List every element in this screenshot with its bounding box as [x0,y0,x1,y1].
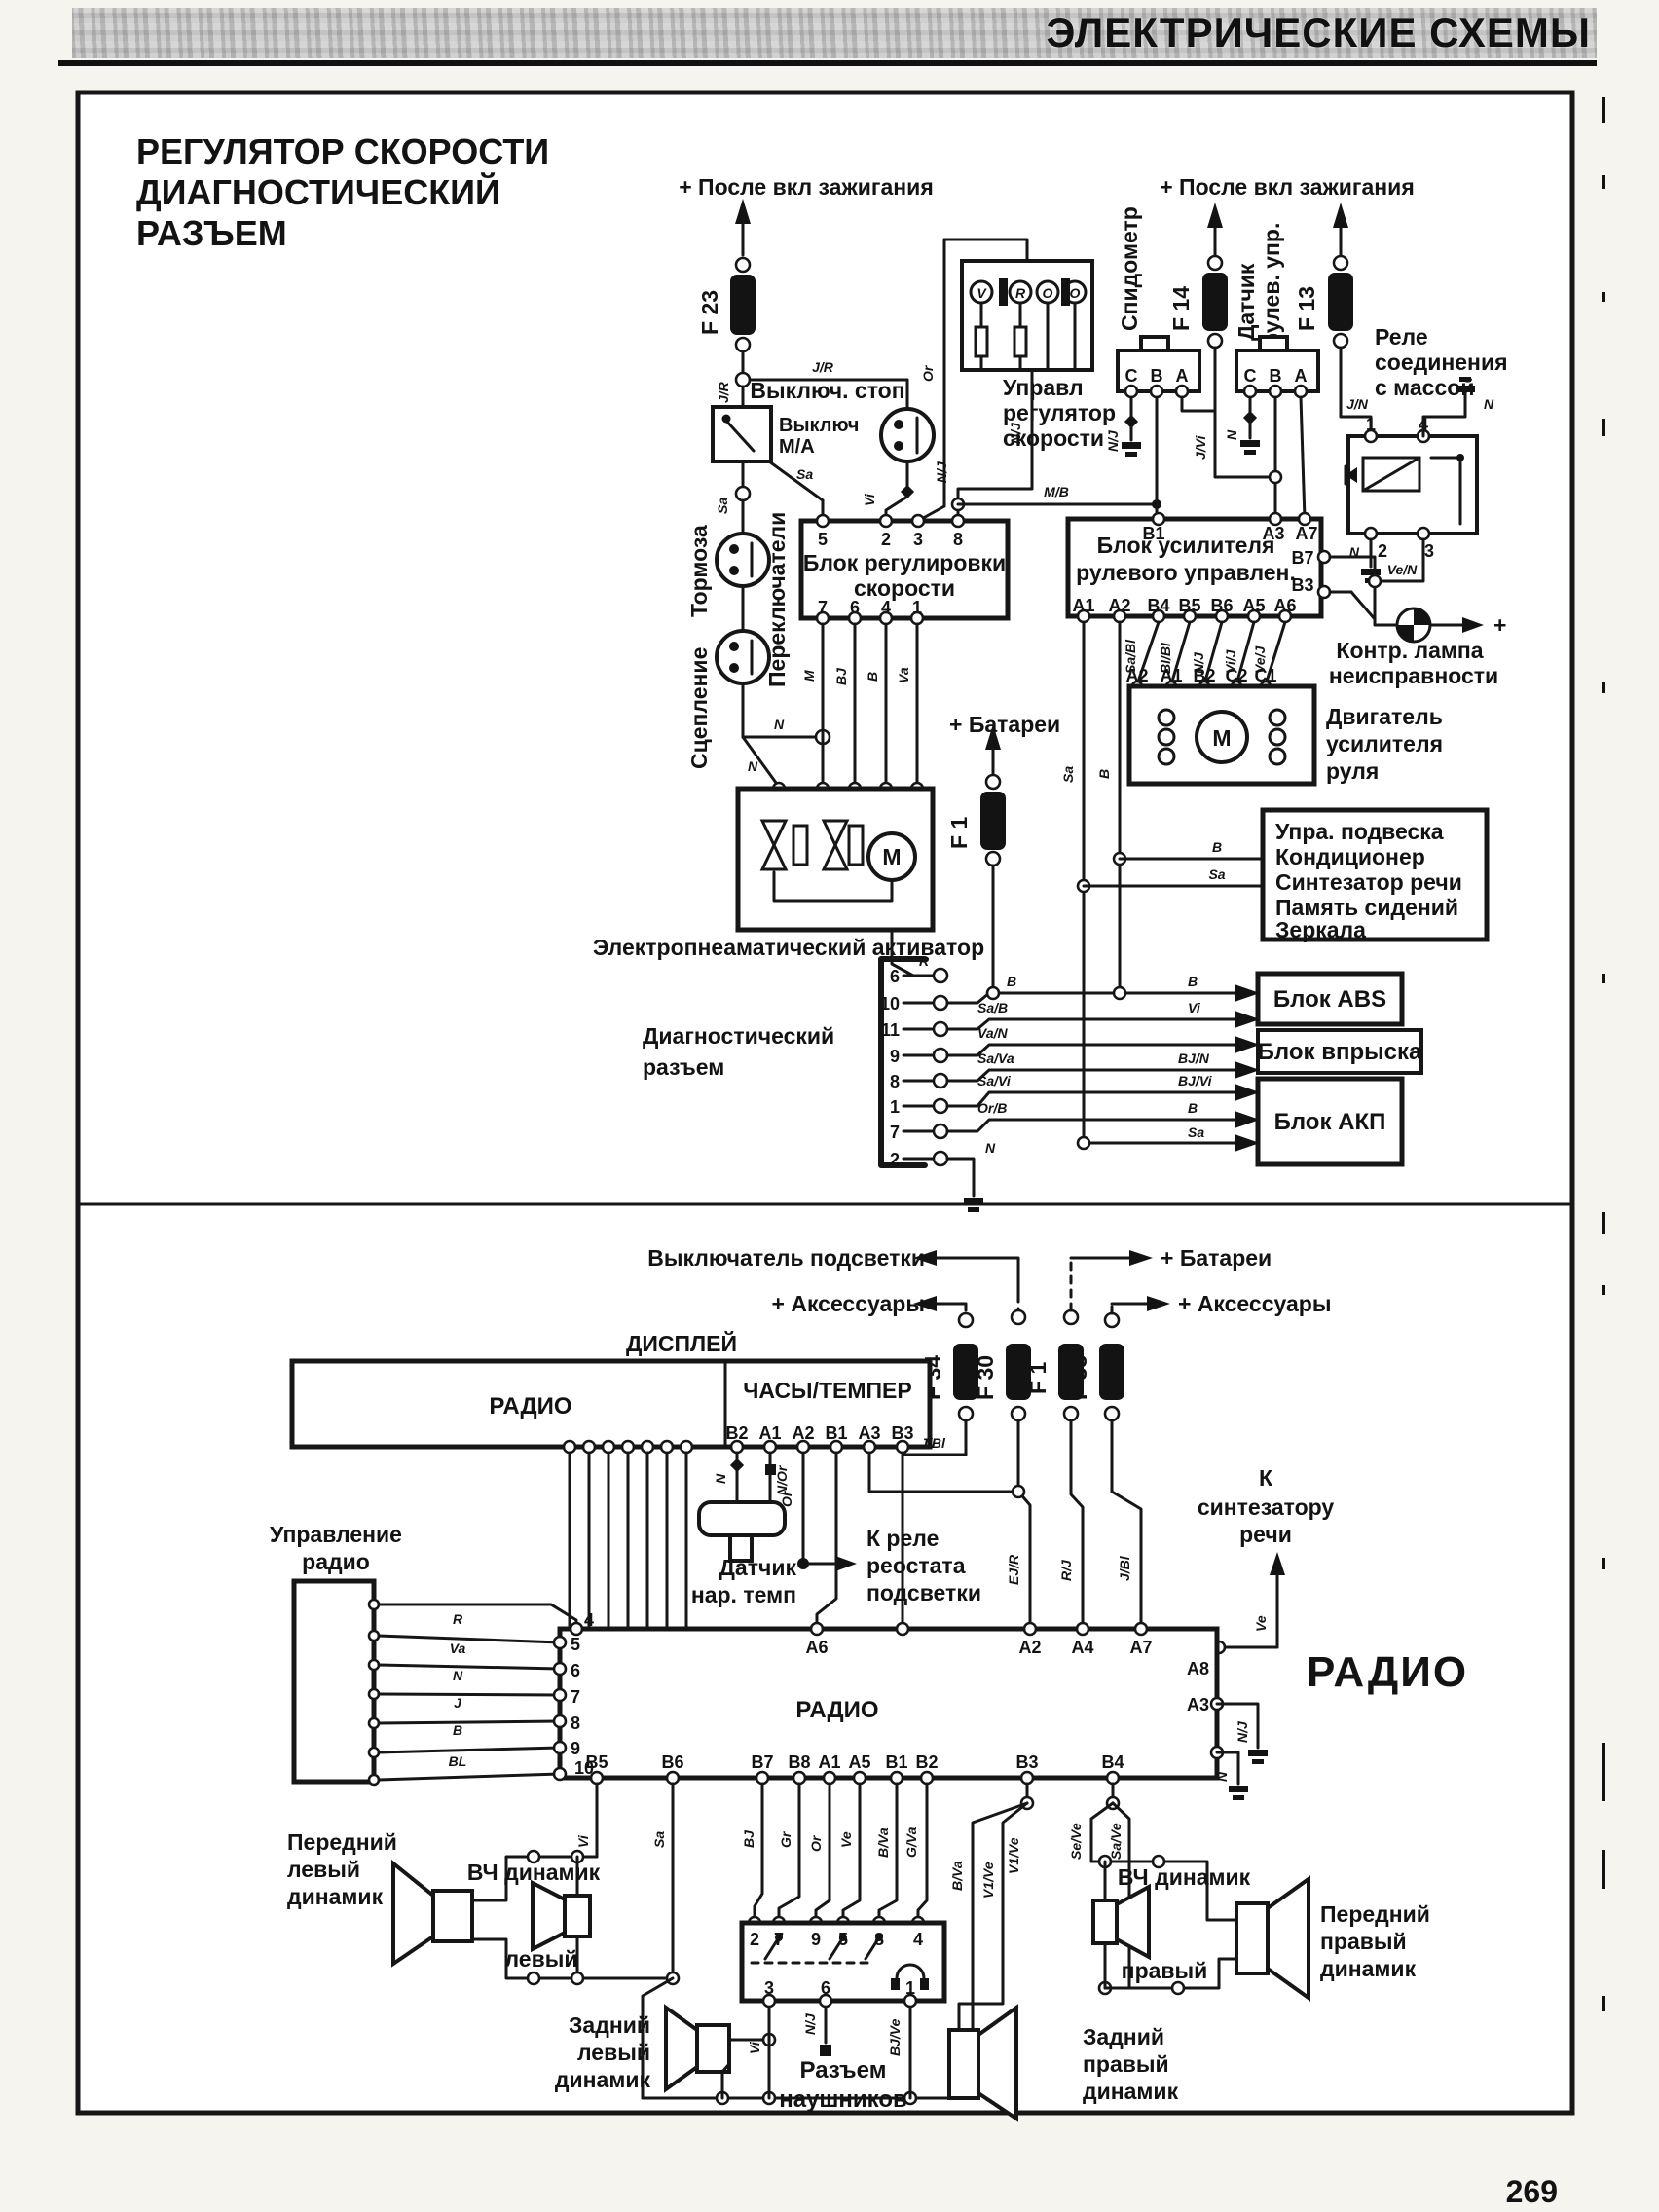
fuse-f14-label: F 14 [1168,286,1194,331]
speed-pin-8: 8 [953,530,963,549]
speed-pin-2: 2 [881,530,891,549]
row-rlabel-b: B [1188,974,1198,989]
wire-seve: Se/Ve [1068,1823,1084,1860]
radio-pin-a7: А7 [1129,1638,1152,1657]
ecu-akp: Блок АКП [1274,1109,1386,1135]
stalk-label1: Управл [1003,375,1084,400]
wire-n2: N [748,758,758,774]
wire-ngnd: N [985,1140,996,1156]
page-number: 269 [1506,2174,1558,2209]
clock-pin-a1: А1 [758,1423,781,1443]
row-label-van: Va/N [977,1025,1008,1041]
wire-jbl: J/Bl [920,1435,946,1451]
rr-label1: Задний [1083,2024,1164,2049]
wire-saamp: Sa [1060,766,1076,783]
radio-pin-b5: В5 [585,1752,608,1772]
diag-label1: Диагностический [643,1023,834,1049]
row-label-sab: Sa/B [977,1000,1008,1015]
radio-pin-b4: В4 [1101,1752,1124,1772]
ctl-wire-b: B [453,1722,462,1738]
amp-pin-b1: В1 [1142,524,1164,543]
wire-vi-jack: Vi [747,2041,762,2054]
speed-pin-5: 5 [818,530,828,549]
wire-nj-jack: N/J [802,2012,818,2035]
jack-label2: наушников [779,2086,907,2113]
fl-label1: Передний [287,1829,397,1855]
clutch-label: Сцепление [686,647,712,769]
diag-pin-11: 11 [881,1020,900,1040]
row-rlabel-bjn: BJ/N [1178,1051,1210,1066]
ctl-wire-va: Va [450,1641,466,1656]
motor-label3: руля [1326,758,1379,784]
wire-b: B [865,672,880,682]
radio-pin-6: 6 [571,1661,580,1680]
relay-title1: Реле [1375,324,1428,350]
radio-pin-a3: А3 [1187,1695,1209,1714]
radio-pin-b1: В1 [885,1752,907,1772]
amp-pin-a7: А7 [1295,524,1317,543]
amp-pin-a1: А1 [1072,596,1094,615]
stalk-letter-o2: O [1070,285,1081,301]
stalk-letter-o1: O [1043,285,1053,301]
wire-ven: Ve/N [1387,562,1418,577]
ecu-abs: Блок ABS [1273,986,1386,1013]
wire-r: R [919,953,930,969]
amp-pin-a6: А6 [1273,596,1296,615]
relay-pin-3: 3 [1424,541,1434,561]
wire-n1: N [774,717,785,732]
wire-jr-left: J/R [716,381,731,403]
diagram-title-line3: РАЗЪЕМ [136,213,287,253]
display-clock-section: ЧАСЫ/ТЕМПЕР [743,1378,911,1403]
wire-nj-gnd: N/J [1235,1720,1250,1743]
wire-njc: N/J [1105,429,1121,452]
ma-switch-icon [713,407,771,461]
row-rlabel-bjvi: BJ/Vi [1178,1073,1213,1088]
clock-pin-a3: А3 [858,1423,880,1443]
motor-m: М [1212,725,1231,751]
stalk-letter-r: R [1015,285,1026,301]
fr-label1: Передний [1320,1901,1430,1927]
wire-or-a1: Or [808,1834,824,1852]
amp-pin-b5: В5 [1178,596,1200,615]
wire-bamp: B [1096,769,1112,779]
fr-label3: динамик [1320,1956,1417,1981]
jack-pin-9: 9 [811,1930,821,1949]
steer-sensor-label2: рулев. упр. [1259,223,1284,347]
ignition-label-left: + После вкл зажигания [679,174,934,200]
diag-pin-2: 2 [890,1150,900,1169]
battery-label-top: + Батареи [949,712,1060,737]
radio-pin-4: 4 [584,1610,594,1630]
wire-mb: М/В [1044,484,1069,499]
radio-pin-b3: В3 [1015,1752,1038,1772]
steer-pin-a: А [1295,366,1308,386]
steer-pin-b: В [1270,366,1282,386]
fr-label2: правый [1320,1929,1407,1954]
synth-label2: синтезатору [1198,1494,1335,1520]
ctl-wire-n: N [453,1668,463,1683]
illum-switch-label: Выключатель подсветки [647,1245,925,1271]
clock-pin-b3: В3 [891,1423,913,1443]
relay-pin-2: 2 [1378,541,1387,561]
jack-pin-5: 5 [838,1930,848,1949]
diag-pin-9: 9 [890,1047,900,1066]
speedo-pin-b: В [1151,366,1163,386]
speedometer-label: Спидометр [1117,206,1142,331]
wire-nj1: N/J [1008,422,1023,444]
temp-sensor-label1: Датчик [719,1555,797,1580]
wire-bj-b7: BJ [741,1829,756,1848]
ignition-label-right: + После вкл зажигания [1160,174,1415,200]
display-label: ДИСПЛЕЙ [626,1330,737,1356]
jack-pin-7: 7 [774,1930,784,1949]
amp-pin-a2: А2 [1108,596,1130,615]
jack-pin-6: 6 [821,1978,830,1998]
wire-v1ve-1: V1/Ve [980,1862,996,1899]
diagram-title-line2: ДИАГНОСТИЧЕСКИЙ [136,171,500,212]
radio-ctl-label1: Управление [270,1522,402,1547]
amp-pin-a3: А3 [1262,524,1284,543]
steer-sensor-label1: Датчик [1234,263,1259,341]
fuse-f23-label: F 23 [697,290,722,335]
twl-label1: ВЧ динамик [467,1860,601,1885]
ecu-injection: Блок впрыска [1258,1039,1422,1065]
wire-jbl2: J/Bl [1117,1555,1132,1581]
ma-switch-label2: М/А [779,436,815,458]
amp-pin-a5: А5 [1242,596,1265,615]
amp-pin-b3: В3 [1291,575,1313,595]
wire-jn: J/N [1346,396,1369,412]
ctl-wire-bl: BL [449,1753,467,1769]
radio-pin-8: 8 [571,1714,580,1733]
radio-pin-a6: А6 [805,1638,828,1657]
rheostat-label1: К реле [866,1526,939,1551]
radio-pin-a4: А4 [1071,1638,1093,1657]
wire-nc: N [1224,429,1239,440]
clock-pin-a2: А2 [792,1423,814,1443]
radio-pin-a5: А5 [848,1752,870,1772]
diag-pin-8: 8 [890,1072,900,1091]
twr-label1: ВЧ динамик [1118,1864,1251,1890]
activator-icon [738,783,933,930]
wire-ve-a5: Ve [838,1831,854,1848]
battery-label-bottom: + Батареи [1161,1245,1272,1271]
rr-label2: правый [1083,2051,1169,2077]
motor-label1: Двигатель [1326,704,1443,729]
rheostat-label3: подсветки [866,1580,981,1605]
jack-pin-8: 8 [874,1930,884,1949]
speedo-pin-a: А [1176,366,1189,386]
wire-n4: N [1484,396,1494,412]
amp-pin-b4: В4 [1147,596,1169,615]
amp-pin-b6: В6 [1210,596,1233,615]
wire-or: Or [920,364,936,382]
wire-sabox: Sa [1208,866,1225,882]
wire-vi-b5: Vi [575,1834,591,1848]
fuse-f30-label: F 30 [973,1355,998,1400]
wire-m: M [801,670,817,682]
schematic-canvas: РЕГУЛЯТОР СКОРОСТИ ДИАГНОСТИЧЕСКИЙ РАЗЪЕ… [0,0,1659,2212]
row-label-savi: Sa/Vi [977,1073,1012,1088]
ma-switch-label1: Выключ [779,415,859,436]
synth-label3: речи [1239,1522,1292,1547]
lamp-plus: + [1493,612,1506,638]
speed-pin-3: 3 [913,530,923,549]
wire-n-gnd: N [1214,1771,1230,1782]
wire-jr: J/R [812,359,834,375]
wire-v1ve-2: V1/Ve [1006,1837,1021,1874]
wire-jvi: J/Vi [1193,435,1208,460]
wire-bva-b3: B/Va [949,1861,965,1891]
rl-label2: левый [577,2040,650,2065]
row-label-orb: Or/B [977,1100,1007,1116]
diag-pin-1: 1 [890,1097,900,1117]
amp-title1: Блок усилителя [1097,533,1275,558]
wire-n-sensor: N [713,1473,728,1484]
clock-pin-b2: В2 [725,1423,748,1443]
diagram-title-line1: РЕГУЛЯТОР СКОРОСТИ [136,131,549,171]
relay-pin-1: 1 [1366,415,1376,434]
fl-label3: динамик [287,1884,384,1909]
wire-bva-b1: B/Va [875,1827,891,1858]
clock-pin-b1: В1 [825,1423,847,1443]
lamp-label1: Контр. лампа [1336,638,1483,663]
wire-bj: BJ [833,667,849,685]
wire-sa-b6: Sa [651,1831,667,1848]
rheostat-label2: реостата [866,1553,966,1578]
twl-label2: левый [504,1946,577,1972]
options-line1: Упра. подвеска [1275,819,1444,844]
radio-pin-b2: В2 [915,1752,938,1772]
activator-motor-m: М [882,844,901,869]
wire-ejr: EJ/R [1006,1554,1021,1585]
wire-ve: Ve [1253,1615,1269,1632]
synth-label1: К [1259,1465,1273,1491]
ground-relay-icon [1346,430,1477,539]
radio-pin-a1b: А1 [818,1752,840,1772]
wire-sa2: Sa [715,498,730,514]
relay-title2: соединения [1375,350,1508,375]
wire-nj2: N/J [934,461,949,483]
row-rlabel-vi: Vi [1188,1000,1201,1015]
rr-label3: динамик [1083,2079,1179,2104]
radio-pin-b6: В6 [661,1752,683,1772]
jack-pin-2: 2 [750,1930,759,1949]
stop-switch-title: Выключ. стоп [750,378,904,403]
rl-label1: Задний [569,2012,650,2038]
speedo-pin-c: С [1125,366,1138,386]
speed-block-title2: скорости [854,575,955,601]
diag-pin-6: 6 [890,967,900,986]
diag-pin-10: 10 [880,994,900,1014]
display-radio-section: РАДИО [489,1393,571,1419]
switch-group-label: Переключатели [764,512,790,687]
options-line3: Синтезатор речи [1275,869,1462,895]
steer-pin-c: С [1244,366,1257,386]
speed-block-title1: Блок регулировки [803,550,1006,575]
fl-label2: левый [287,1857,360,1882]
wire-rj: R/J [1058,1559,1074,1581]
row-rlabel-b2: B [1188,1100,1198,1116]
radio-pin-7: 7 [571,1687,580,1707]
lamp-label2: неисправности [1329,663,1498,688]
ctl-wire-j: J [454,1695,462,1711]
wire-nor: N/Or [774,1464,790,1495]
brakes-label: Тормоза [686,525,712,617]
radio-ctl-label2: радио [302,1549,370,1574]
fuse-f1-label: F 1 [946,817,972,849]
wire-gva-b2: G/Va [903,1826,919,1858]
radio-pin-b7: В7 [751,1752,773,1772]
wire-vi: Vi [862,493,877,506]
motor-label2: усилителя [1326,731,1443,756]
ctl-wire-r: R [453,1611,463,1627]
diag-pin-7: 7 [890,1123,900,1142]
radio-pin-a2t: А2 [1018,1638,1041,1657]
radio-pin-5: 5 [571,1635,580,1654]
row-label-sava: Sa/Va [977,1051,1014,1066]
stop-contact-icon [881,409,934,461]
radio-pin-9: 9 [571,1739,580,1758]
stalk-label2: регулятор [1003,400,1116,425]
radio-big-label: РАДИО [1307,1648,1468,1696]
fuse-f13-label: F 13 [1294,286,1319,331]
acc-label-left: + Аксессуары [772,1291,925,1316]
acc-label-right: + Аксессуары [1178,1291,1331,1316]
amp-pin-b7: В7 [1291,548,1313,568]
options-line2: Кондиционер [1275,844,1425,869]
radio-pin-a8: А8 [1187,1659,1209,1678]
wire-save: Sa/Ve [1108,1823,1124,1860]
jack-label1: Разъем [800,2057,887,2083]
row-rlabel-sa: Sa [1188,1124,1204,1140]
jack-pin-1: 1 [905,1978,915,1998]
wire-sa: Sa [796,466,813,482]
wire-bbox: B [1212,839,1222,855]
amp-title2: рулевого управлен. [1076,560,1296,585]
options-line5: Зеркала [1275,917,1366,942]
radio-inner-label: РАДИО [795,1697,878,1723]
radio-pin-b8: В8 [788,1752,810,1772]
row-label-b: B [1007,974,1016,989]
diag-label2: разъем [643,1054,724,1080]
wire-va: Va [896,667,911,683]
temp-sensor-label2: нар. темп [691,1582,796,1607]
jack-pin-3: 3 [764,1978,774,1998]
fuse-f1b-label: F 1 [1025,1362,1051,1394]
wire-gr-b8: Gr [778,1830,793,1848]
fuse-f33-label: F 33 [1066,1355,1091,1400]
jack-pin-4: 4 [913,1930,923,1949]
rl-label3: динамик [555,2067,651,2092]
twr-label2: правый [1122,1958,1208,1983]
binding-marks [1602,97,1605,2011]
wire-bjve-jack: BJ/Ve [887,2018,903,2056]
